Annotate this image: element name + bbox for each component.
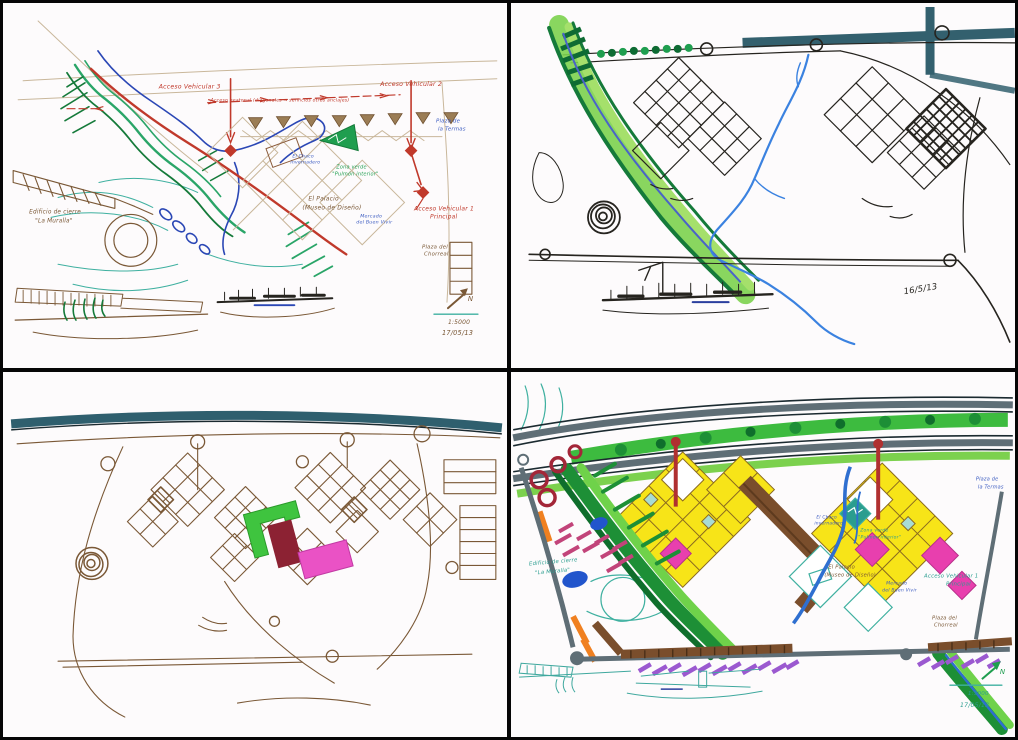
- label-plaza-chorreal: Plaza del: [932, 615, 957, 621]
- north-arrow: N: [434, 288, 478, 314]
- label-zona-verde: Zona verde: [335, 165, 366, 171]
- sketch-panel-ink-marker: 16/5/13: [511, 3, 1015, 368]
- road-network: [17, 434, 500, 717]
- main-road: [529, 254, 1010, 342]
- sepia-drawing: [3, 372, 507, 737]
- label-el-palacio-2: (Museo de Diseño): [824, 572, 876, 578]
- label-el-chaco: El Chaco: [816, 515, 837, 521]
- ink-marker-drawing: 16/5/13: [511, 3, 1015, 368]
- vegetation-scribbles: [61, 61, 332, 276]
- label-acceso-peatonal: Acceso peatonal (diagonales → servicios …: [210, 98, 350, 104]
- label-date: 17/05/13: [442, 329, 473, 337]
- label-plaza-termas: Plaza de: [976, 477, 998, 483]
- roads: [18, 21, 497, 302]
- sketch-board: N Acceso Vehicular 3 Acceso Vehicular 2 …: [0, 0, 1018, 740]
- label-acceso-principal: Acceso Vehicular 1: [923, 573, 978, 579]
- label-mercado: Mercado: [886, 580, 907, 586]
- label-el-palacio: El Palacio: [828, 564, 855, 570]
- label-mercado-2: del Buen Vivir: [882, 587, 918, 593]
- label-acceso-vehicular-1: Acceso Vehicular 1: [413, 205, 474, 212]
- label-zona-verde: Zona verde: [859, 528, 888, 534]
- north-label: N: [1000, 668, 1006, 676]
- label-el-chaco-2: invernadero: [814, 521, 843, 527]
- zona-verde-wedge: [320, 125, 358, 151]
- full-color-drawing: N Edificio de cierre "La Muralla" Plaza …: [511, 372, 1015, 737]
- building-grid: [207, 117, 404, 269]
- label-zona-verde-2: "Pulmón interior": [332, 171, 378, 178]
- building-cluster-east: [824, 67, 960, 218]
- label-plaza-chorreal-2: Chorreal: [424, 251, 449, 257]
- label-plaza-termas-2: la Termas: [438, 127, 466, 133]
- label-acceso-principal-2: Principal: [946, 581, 971, 587]
- label-plaza-termas-2: la Termas: [978, 485, 1004, 491]
- label-mercado-2: del Buen Vivir: [356, 219, 393, 225]
- label-el-palacio-2: (Museo de Diseño): [302, 204, 361, 211]
- spiral-plaza: [533, 153, 620, 234]
- concept-lineart-drawing: N Acceso Vehicular 3 Acceso Vehicular 2 …: [3, 3, 507, 368]
- green-corridor: [549, 23, 758, 294]
- top-band: [11, 415, 502, 434]
- plaza-circle: [105, 214, 157, 266]
- river-line: [710, 55, 854, 344]
- label-plaza-chorreal: Plaza del: [422, 244, 448, 250]
- elevation-sketch-right: [218, 287, 335, 317]
- sketch-panel-concept-lineart: N Acceso Vehicular 3 Acceso Vehicular 2 …: [3, 3, 507, 368]
- label-zona-verde-2: "Pulmón interior": [858, 534, 901, 541]
- top-band: [743, 7, 1015, 91]
- market-building-plan: [450, 242, 472, 294]
- spiral-plaza: [76, 548, 108, 580]
- label-scale: 1:5000: [968, 691, 989, 697]
- label-date: 17/05/13: [960, 702, 989, 709]
- label-edificio-cierre: Edificio de cierre: [29, 209, 81, 215]
- building-dark-hatched: [907, 89, 986, 168]
- label-el-chaco-2: invernadero: [290, 160, 320, 166]
- label-el-chaco: El Chaco: [292, 154, 313, 160]
- label-date: 16/5/13: [903, 281, 938, 296]
- label-plaza-chorreal-2: Chorreal: [934, 622, 958, 628]
- green-corridor: [555, 464, 1010, 729]
- sketch-panel-sepia: [3, 372, 507, 737]
- elevation-sketch-left: [15, 288, 207, 338]
- label-el-palacio: El Palacio: [308, 195, 339, 202]
- label-acceso-vehicular-1-sub: Principal: [430, 213, 457, 220]
- sketch-panel-full-color: N Edificio de cierre "La Muralla" Plaza …: [511, 372, 1015, 737]
- label-scale: 1:5000: [448, 319, 470, 326]
- label-acceso-vehicular-3: Acceso Vehicular 3: [158, 84, 221, 91]
- north-label: N: [468, 295, 474, 303]
- label-plaza-termas: Plaza de: [436, 119, 461, 125]
- label-mercado: Mercado: [360, 213, 382, 219]
- label-acceso-vehicular-2: Acceso Vehicular 2: [379, 81, 442, 88]
- tree-row: [597, 44, 693, 58]
- label-edificio-cierre-2: "La Muralla": [35, 218, 73, 224]
